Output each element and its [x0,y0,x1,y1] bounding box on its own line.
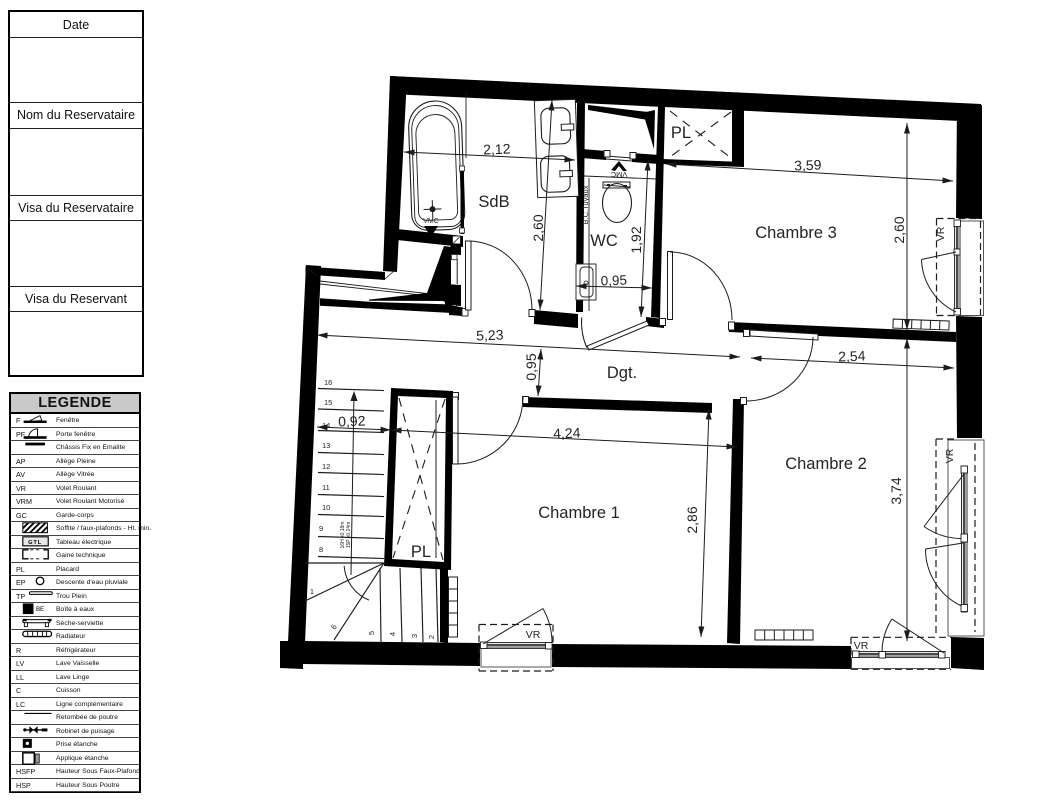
svg-text:5: 5 [367,631,376,635]
svg-text:0,95: 0,95 [600,272,627,288]
svg-text:9: 9 [319,524,323,533]
svg-text:VR: VR [526,629,541,641]
svg-text:3,59: 3,59 [794,156,822,173]
svg-text:3,74: 3,74 [888,477,904,504]
svg-text:2,60: 2,60 [891,216,907,243]
svg-text:3: 3 [410,634,419,638]
svg-text:VMC: VMC [423,218,439,225]
svg-text:1,92: 1,92 [628,226,644,253]
svg-text:Chambre 1: Chambre 1 [538,504,620,522]
svg-text:0,92: 0,92 [338,412,366,429]
svg-text:16: 16 [324,378,332,387]
svg-text:13: 13 [322,441,330,450]
svg-text:2,60: 2,60 [530,214,546,241]
svg-text:12: 12 [322,462,330,471]
svg-text:2: 2 [427,635,436,639]
svg-text:VR: VR [935,226,947,241]
svg-text:2,12: 2,12 [483,140,511,157]
svg-text:1: 1 [310,587,314,596]
svg-text:PL: PL [411,543,431,561]
svg-text:VR: VR [854,640,869,652]
svg-text:5,23: 5,23 [476,326,504,343]
svg-text:11: 11 [322,483,330,492]
svg-text:PL: PL [671,124,691,142]
svg-text:15: 15 [324,398,332,407]
svg-text:Chambre 2: Chambre 2 [785,455,867,473]
svg-text:Chambre 3: Chambre 3 [755,224,837,242]
svg-text:4,24: 4,24 [553,424,581,441]
svg-text:15P x0,24m: 15P x0,24m [346,522,352,549]
svg-text:B.C.Tuyaux: B.C.Tuyaux [581,185,590,224]
svg-text:2,86: 2,86 [684,506,700,533]
svg-text:Dgt.: Dgt. [607,364,637,382]
svg-text:10: 10 [322,503,330,512]
svg-text:VR: VR [944,448,956,463]
svg-text:4: 4 [388,632,397,636]
svg-text:SdB: SdB [478,193,509,211]
svg-text:WC: WC [590,232,618,250]
svg-text:0,95: 0,95 [523,353,539,380]
svg-text:2,54: 2,54 [838,347,866,364]
svg-text:8: 8 [319,545,323,554]
svg-text:6: 6 [329,623,339,631]
